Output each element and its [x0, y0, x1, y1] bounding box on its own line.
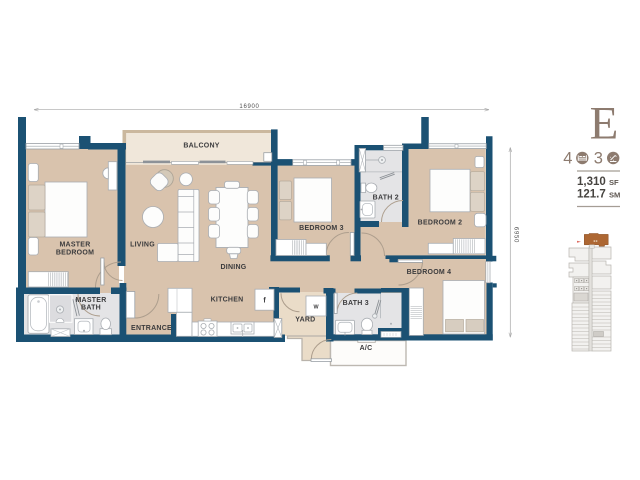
- svg-text:16900: 16900: [239, 104, 259, 110]
- svg-text:DINING: DINING: [221, 264, 247, 271]
- svg-text:BEDROOM 3: BEDROOM 3: [299, 225, 344, 232]
- svg-text:MASTER: MASTER: [75, 297, 106, 304]
- svg-text:E: E: [590, 97, 619, 149]
- svg-text:BATH 3: BATH 3: [343, 300, 369, 307]
- svg-text:KITCHEN: KITCHEN: [211, 297, 244, 304]
- svg-text:4: 4: [563, 150, 572, 168]
- svg-text:121.7 SM: 121.7 SM: [577, 189, 620, 201]
- svg-text:1,310 SF: 1,310 SF: [577, 176, 619, 188]
- svg-text:BEDROOM 2: BEDROOM 2: [418, 220, 463, 227]
- svg-text:YARD: YARD: [295, 317, 315, 324]
- svg-text:LIVING: LIVING: [130, 242, 155, 249]
- svg-text:BALCONY: BALCONY: [183, 142, 219, 149]
- svg-text:MASTER: MASTER: [59, 241, 90, 248]
- svg-text:BATH 2: BATH 2: [373, 194, 399, 201]
- svg-text:3: 3: [594, 150, 603, 168]
- svg-text:ENTRANCE: ENTRANCE: [131, 325, 172, 332]
- svg-text:BEDROOM 4: BEDROOM 4: [407, 269, 452, 276]
- svg-text:BEDROOM: BEDROOM: [56, 249, 94, 256]
- svg-text:BATH: BATH: [81, 305, 101, 312]
- svg-text:6950: 6950: [513, 227, 519, 243]
- svg-text:A/C: A/C: [360, 345, 373, 352]
